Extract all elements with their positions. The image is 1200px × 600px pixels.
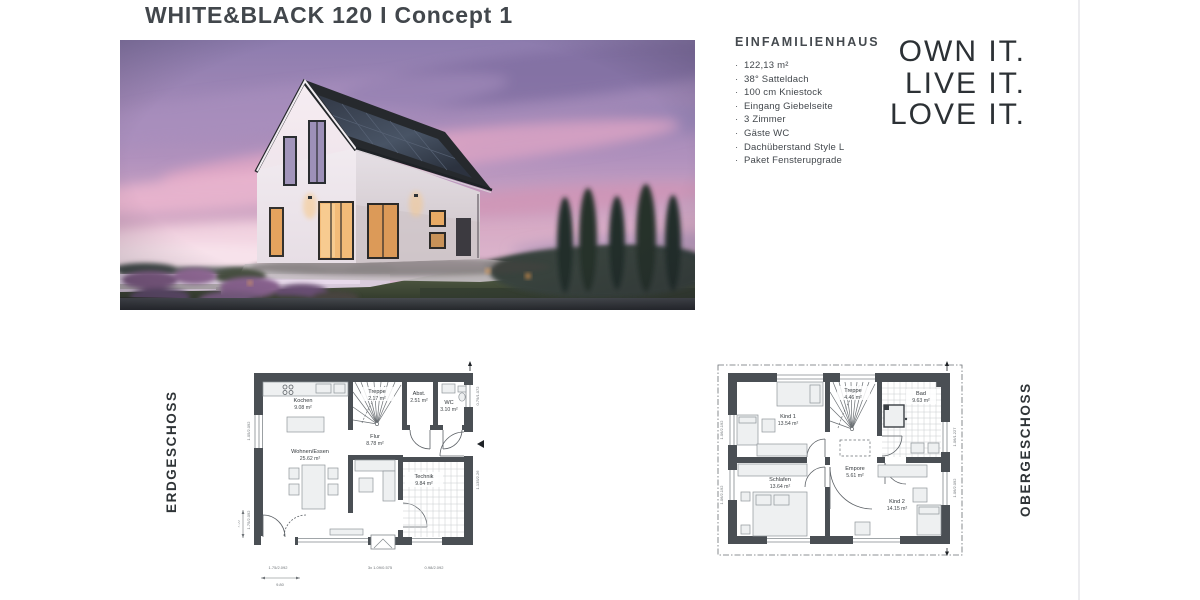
svg-text:3.10 m²: 3.10 m²	[440, 407, 458, 413]
svg-text:3x 1.09/0.575: 3x 1.09/0.575	[368, 565, 393, 570]
room-label: Technik	[415, 474, 434, 480]
label-erdgeschoss: ERDGESCHOSS	[164, 390, 179, 513]
svg-text:1.05/2.092: 1.05/2.092	[246, 421, 251, 441]
room-label: Schlafen	[769, 477, 791, 483]
tagline-line: LIVE IT.	[830, 68, 1026, 100]
room-label: Treppe	[844, 388, 862, 394]
room-label: Bad	[916, 391, 926, 397]
bullet-icon: ·	[735, 59, 744, 73]
tagline: OWN IT. LIVE IT. LOVE IT.	[830, 36, 1026, 131]
room-label: Kind 1	[780, 414, 796, 420]
svg-text:1.06/2.192: 1.06/2.192	[719, 420, 724, 440]
svg-text:0.79/1.072: 0.79/1.072	[475, 386, 480, 406]
page-title: WHITE&BLACK 120 I Concept 1	[145, 2, 513, 29]
room-label: Kind 2	[889, 499, 905, 505]
room-label: WC	[444, 400, 453, 406]
svg-text:13.64 m²: 13.64 m²	[770, 484, 791, 490]
svg-text:9.63 m²: 9.63 m²	[912, 398, 930, 404]
svg-text:2.17 m²: 2.17 m²	[368, 396, 386, 402]
room-label: Treppe	[368, 389, 386, 395]
svg-text:14.15 m²: 14.15 m²	[887, 506, 908, 512]
svg-text:0.98/2.092: 0.98/2.092	[425, 565, 445, 570]
entrance-arrow-icon	[477, 440, 484, 448]
tagline-line: OWN IT.	[830, 36, 1026, 68]
svg-text:1.06/1.227: 1.06/1.227	[952, 427, 957, 447]
tagline-line: LOVE IT.	[830, 99, 1026, 131]
bullet-icon: ·	[735, 141, 744, 155]
svg-text:7.55: 7.55	[238, 519, 241, 528]
bullet-icon: ·	[735, 100, 744, 114]
room-label: Kochen	[294, 398, 313, 404]
bullet-icon: ·	[735, 86, 744, 100]
svg-text:1.135/2.26: 1.135/2.26	[475, 470, 480, 490]
svg-text:8.78 m²: 8.78 m²	[366, 441, 384, 447]
room-label: Flur	[370, 434, 380, 440]
room-label: Abst.	[413, 391, 426, 397]
svg-text:13.54 m²: 13.54 m²	[778, 421, 799, 427]
spec-item: ·Paket Fensterupgrade	[735, 154, 935, 168]
brochure-page: WHITE&BLACK 120 I Concept 1	[0, 0, 1200, 600]
floorplan-erdgeschoss: Kochen 9.08 m² Treppe 2.17 m² Abst. 2.51…	[238, 360, 498, 590]
hero-photo-scene	[120, 40, 695, 310]
floorplan-obergeschoss: Kind 1 13.54 m² Treppe 4.46 m² Bad 9.63 …	[710, 355, 970, 565]
room-label: Wohnen/Essen	[291, 449, 329, 455]
svg-text:4.46 m²: 4.46 m²	[844, 395, 862, 401]
svg-text:25.62 m²: 25.62 m²	[300, 456, 321, 462]
svg-text:1.75/2.092: 1.75/2.092	[246, 510, 251, 530]
svg-text:1.06/2.192: 1.06/2.192	[719, 485, 724, 505]
page-edge-divider	[1078, 0, 1080, 600]
svg-text:1.06/2.092: 1.06/2.092	[952, 478, 957, 498]
bullet-icon: ·	[735, 127, 744, 141]
empore-void	[840, 440, 870, 456]
spec-item: ·Dachüberstand Style L	[735, 141, 935, 155]
svg-text:1.75/2.092: 1.75/2.092	[269, 565, 289, 570]
bullet-icon: ·	[735, 154, 744, 168]
svg-text:9.08 m²: 9.08 m²	[294, 405, 312, 411]
svg-text:2.51 m²: 2.51 m²	[410, 398, 428, 404]
bullet-icon: ·	[735, 113, 744, 127]
bullet-icon: ·	[735, 73, 744, 87]
svg-text:5.61 m²: 5.61 m²	[846, 473, 864, 479]
hero-photo	[120, 40, 695, 310]
svg-text:9.80: 9.80	[276, 582, 285, 587]
svg-text:9.84 m²: 9.84 m²	[415, 481, 433, 487]
room-label: Empore	[845, 466, 865, 472]
label-obergeschoss: OBERGESCHOSS	[1018, 382, 1033, 517]
